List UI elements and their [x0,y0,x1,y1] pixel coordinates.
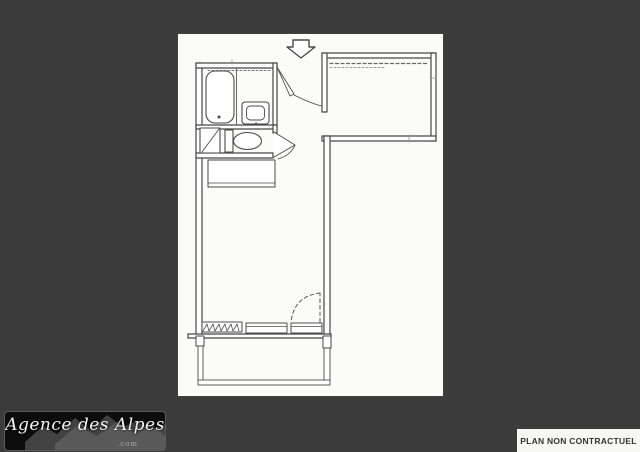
balcony-post-right [323,336,331,348]
wc-door [274,132,295,159]
entrance-door-arc [294,95,322,106]
balcony-door-swing [291,293,320,322]
bathtub-drain [218,116,221,119]
pencil-ticks [232,60,436,142]
balcony-rail-bottom [198,380,330,385]
wall-main-bottom [188,334,331,338]
wall-bathroom-top [196,63,277,68]
washbasin-drain [255,122,257,124]
entrance-arrow-icon [287,40,315,58]
agency-logo: Agence des Alpes .com [4,411,166,451]
bathroom-fixtures [206,68,269,125]
bottom-wall-elements [202,322,322,333]
disclaimer-label: PLAN NON CONTRACTUEL [520,436,636,446]
wall-nook-bottom [322,136,436,141]
balcony [196,336,331,385]
wall-left [196,63,202,338]
wall-bathroom-right [273,63,277,125]
entrance-door-leaf [277,67,294,96]
kitchenette-counter [208,160,275,187]
wall-nook-top [322,53,436,58]
wall-wc-bottom [196,153,273,158]
window-left [246,323,287,333]
wall-main-right [324,136,330,338]
toilet-bowl [234,133,262,150]
balcony-post-left [196,336,204,346]
floor-plan-panel [178,34,443,396]
bathtub [206,71,234,123]
agency-logo-text: Agence des Alpes [5,415,165,435]
balcony-door-arc [291,293,320,322]
floor-plan-drawing [178,34,443,396]
agency-logo-com: .com [117,440,138,448]
disclaimer-badge: PLAN NON CONTRACTUEL [517,429,640,452]
wall-nook-right [431,53,436,141]
window-right [291,323,322,333]
toilet-tank [225,130,233,152]
wc-door-leaf [274,132,295,157]
entrance-door [277,67,322,106]
wall-nook-left [322,53,327,112]
wc-fixtures [200,128,262,153]
washbasin-bowl [247,106,265,120]
